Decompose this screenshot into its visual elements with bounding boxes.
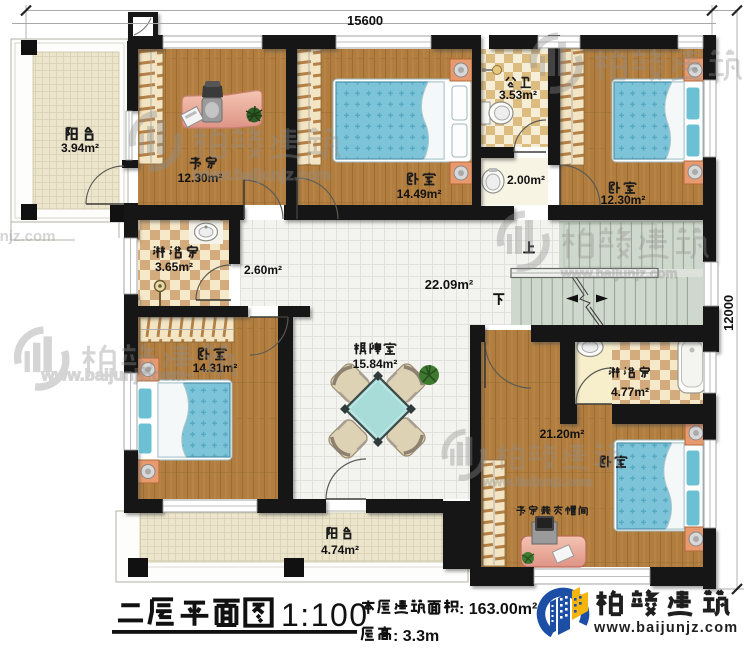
svg-text:3.94m²: 3.94m²: [61, 141, 99, 155]
svg-text:www.baijunjz.com: www.baijunjz.com: [40, 366, 186, 385]
svg-text:www.baijunjz.com: www.baijunjz.com: [482, 474, 593, 489]
svg-text:: 163.00m²: : 163.00m²: [459, 601, 537, 618]
svg-text:15600: 15600: [347, 13, 383, 28]
svg-text:1:100: 1:100: [281, 597, 369, 633]
svg-text:4.74m²: 4.74m²: [321, 543, 359, 557]
svg-text:www.baijunjz.com: www.baijunjz.com: [593, 620, 738, 636]
svg-text:www.baijunjz.com: www.baijunjz.com: [560, 266, 678, 281]
svg-text:14.31m²: 14.31m²: [193, 361, 238, 375]
svg-text:12000: 12000: [721, 295, 736, 331]
svg-text:15.84m²: 15.84m²: [353, 357, 398, 371]
svg-text:www.baijunjz.com: www.baijunjz.com: [0, 228, 55, 245]
svg-text:21.20m²: 21.20m²: [540, 427, 585, 441]
svg-text:14.49m²: 14.49m²: [397, 187, 442, 201]
svg-text:2.60m²: 2.60m²: [244, 263, 282, 277]
svg-text:www.baijunjz.com: www.baijunjz.com: [192, 167, 331, 184]
svg-text:2.00m²: 2.00m²: [507, 173, 545, 187]
svg-text:3.65m²: 3.65m²: [155, 260, 193, 274]
svg-text:3.53m²: 3.53m²: [499, 88, 537, 102]
svg-text:: 3.3m: : 3.3m: [393, 628, 439, 645]
svg-text:4.77m²: 4.77m²: [611, 385, 649, 399]
svg-text:12.30m²: 12.30m²: [601, 193, 646, 207]
svg-text:22.09m²: 22.09m²: [425, 277, 474, 292]
